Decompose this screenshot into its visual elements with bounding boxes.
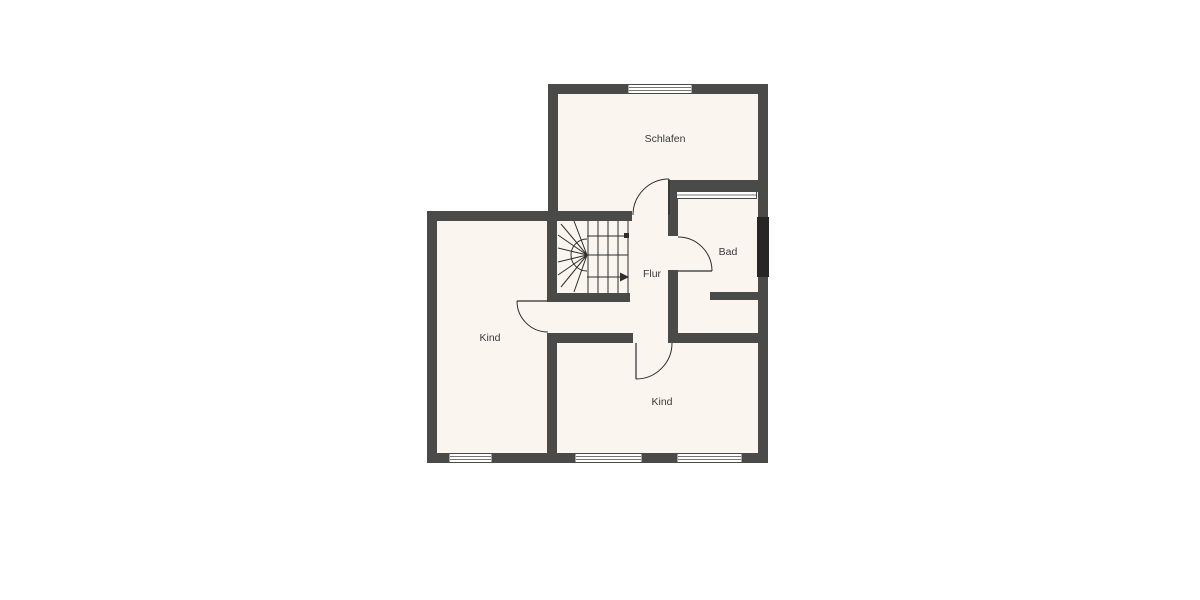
window-schlafen-north — [628, 85, 692, 94]
flue-block-east-wall — [757, 217, 769, 277]
wall-kindwest-divider-upper — [547, 221, 557, 302]
wall-west-outer — [427, 211, 437, 463]
window-kindsued-south-2 — [677, 454, 742, 463]
floorplan-drawing: Schlafen Bad Flur Kind Kind — [0, 0, 1200, 600]
floorplan-canvas: Schlafen Bad Flur Kind Kind — [0, 0, 1200, 600]
room-label-kind-west: Kind — [479, 332, 500, 344]
wall-stairs-south — [547, 293, 630, 302]
room-label-bad: Bad — [719, 246, 738, 258]
room-label-flur: Flur — [643, 268, 662, 280]
wall-flur-bad-lower — [668, 270, 678, 343]
wall-upper-west-horizontal — [427, 211, 632, 221]
wall-kindsued-north-right — [672, 333, 758, 343]
window-bad-interior — [677, 192, 757, 199]
wall-bad-north — [668, 180, 758, 192]
wall-kindwest-divider-lower — [547, 333, 557, 463]
wall-kindsued-north-left — [557, 333, 633, 343]
window-kindwest-south — [449, 454, 492, 463]
stairs-walkline-start-dot — [624, 233, 629, 238]
wall-bad-stub — [710, 292, 758, 300]
room-label-schlafen: Schlafen — [645, 133, 686, 145]
window-kindsued-south-1 — [575, 454, 642, 463]
room-label-kind-sued: Kind — [651, 396, 672, 408]
wall-schlafen-west — [548, 84, 558, 221]
